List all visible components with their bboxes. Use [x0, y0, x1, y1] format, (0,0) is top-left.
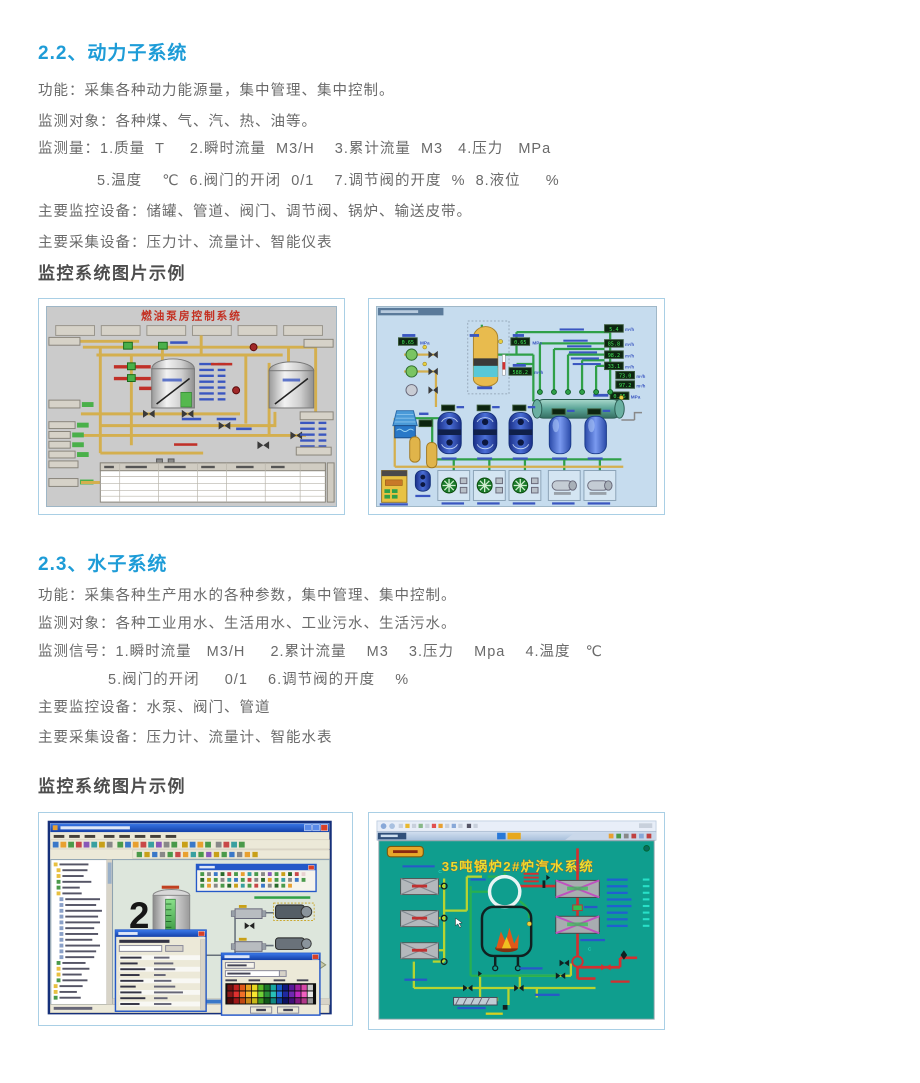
svg-text:85.8: 85.8 — [608, 342, 620, 348]
svg-text:m³/h: m³/h — [636, 383, 645, 388]
air-station-scada-image: 0.65 MPa 0.65 MPa — [376, 306, 657, 507]
svg-text:MPa: MPa — [532, 340, 542, 345]
screw-compressor-unit — [380, 471, 408, 506]
power-line-function: 功能：采集各种动力能源量，集中管理、集中控制。 — [38, 79, 395, 100]
section-power-title: 2.2、动力子系统 — [38, 38, 187, 65]
power-line-collect: 主要采集设备：压力计、流量计、智能仪表 — [38, 231, 333, 252]
project-tree-panel — [51, 860, 113, 1005]
temp-unit-mark: C — [438, 869, 442, 875]
toolbox-palette-window — [196, 864, 316, 891]
svg-text:MPa: MPa — [420, 340, 430, 345]
svg-text:m³/h: m³/h — [625, 365, 634, 370]
power-gallery-heading: 监控系统图片示例 — [38, 259, 186, 284]
properties-dialog — [115, 930, 206, 1011]
power-line-devices: 主要监控设备：储罐、管道、阀门、调节阀、锅炉、输送皮带。 — [38, 200, 472, 221]
return-button — [387, 846, 423, 856]
figure-scada-editor: 2 — [38, 812, 353, 1026]
svg-text:98.2: 98.2 — [608, 353, 620, 359]
water-line-signals-2: 5.阀门的开闭 0/1 6.调节阀的开度 % — [108, 668, 409, 689]
section-water-title: 2.3、水子系统 — [38, 549, 167, 576]
fuel-tank-2 — [269, 362, 314, 408]
svg-text:0.65: 0.65 — [402, 340, 414, 346]
svg-text:5.4: 5.4 — [609, 327, 618, 333]
toolbar-row-2 — [133, 850, 330, 859]
svg-text:97.2: 97.2 — [619, 383, 631, 389]
svg-text:33.1: 33.1 — [608, 364, 620, 370]
svg-text:m³/h: m³/h — [636, 374, 645, 379]
power-line-objects: 监测对象：各种煤、气、汽、热、油等。 — [38, 110, 317, 131]
gear-icon — [644, 845, 650, 851]
water-gallery-heading: 监控系统图片示例 — [38, 772, 186, 797]
water-line-signals: 监测信号：1.瞬时流量 M3/H 2.累计流量 M3 3.压力 Mpa 4.温度… — [38, 640, 603, 661]
svg-text:m³/h: m³/h — [625, 327, 634, 332]
fuel-pump-title: 燃油泵房控制系统 — [141, 310, 242, 323]
compressor-bays — [438, 471, 616, 505]
svg-text:588.2: 588.2 — [513, 370, 528, 376]
boiler-page-title: 35吨锅炉2#炉汽水系统 — [442, 858, 594, 874]
figure-boiler-scada: 35吨锅炉2#炉汽水系统 — [368, 812, 665, 1030]
svg-text:m³/h: m³/h — [625, 342, 634, 347]
water-line-devices: 主要监控设备：水泵、阀门、管道 — [38, 696, 271, 717]
temp-mark: C — [588, 946, 592, 952]
toolbar-row-1 — [51, 840, 330, 849]
power-line-measures: 监测量：1.质量 T 2.瞬时流量 M3/H 3.累计流量 M3 4.压力 MP… — [38, 137, 551, 158]
scada-editor-image: 2 — [46, 820, 345, 1018]
fuel-pump-scada-image: 燃油泵房控制系统 — [46, 306, 337, 507]
event-table — [100, 463, 334, 502]
water-line-function: 功能：采集各种生产用水的各种参数，集中管理、集中控制。 — [38, 584, 457, 605]
fuel-tank-1 — [152, 359, 195, 408]
browser-tab-bar — [377, 831, 656, 840]
boiler-scada-image: 35吨锅炉2#炉汽水系统 — [376, 820, 657, 1022]
app-title-bar — [50, 823, 329, 832]
figure-fuel-pump-scada: 燃油泵房控制系统 — [38, 298, 345, 515]
svg-text:73.0: 73.0 — [619, 374, 631, 380]
svg-text:MPa: MPa — [631, 395, 641, 400]
power-line-measures-2: 5.温度 ℃ 6.阀门的开闭 0/1 7.调节阀的开度 % 8.液位 % — [97, 169, 560, 190]
figure-air-station-scada: 0.65 MPa 0.65 MPa — [368, 298, 665, 515]
svg-text:0.65: 0.65 — [514, 340, 526, 346]
svg-text:m³/h: m³/h — [534, 370, 543, 375]
color-picker-dialog — [222, 953, 320, 1015]
water-line-collect: 主要采集设备：压力计、流量计、智能水表 — [38, 726, 333, 747]
browser-toolbar — [377, 821, 656, 831]
document-page: 2.2、动力子系统 功能：采集各种动力能源量，集中管理、集中控制。 监测对象：各… — [0, 0, 920, 1083]
canvas-hint-text — [254, 896, 310, 899]
svg-text:m³/h: m³/h — [625, 353, 634, 358]
window-title-text — [381, 310, 418, 313]
water-line-objects: 监测对象：各种工业用水、生活用水、工业污水、生活污水。 — [38, 612, 457, 633]
